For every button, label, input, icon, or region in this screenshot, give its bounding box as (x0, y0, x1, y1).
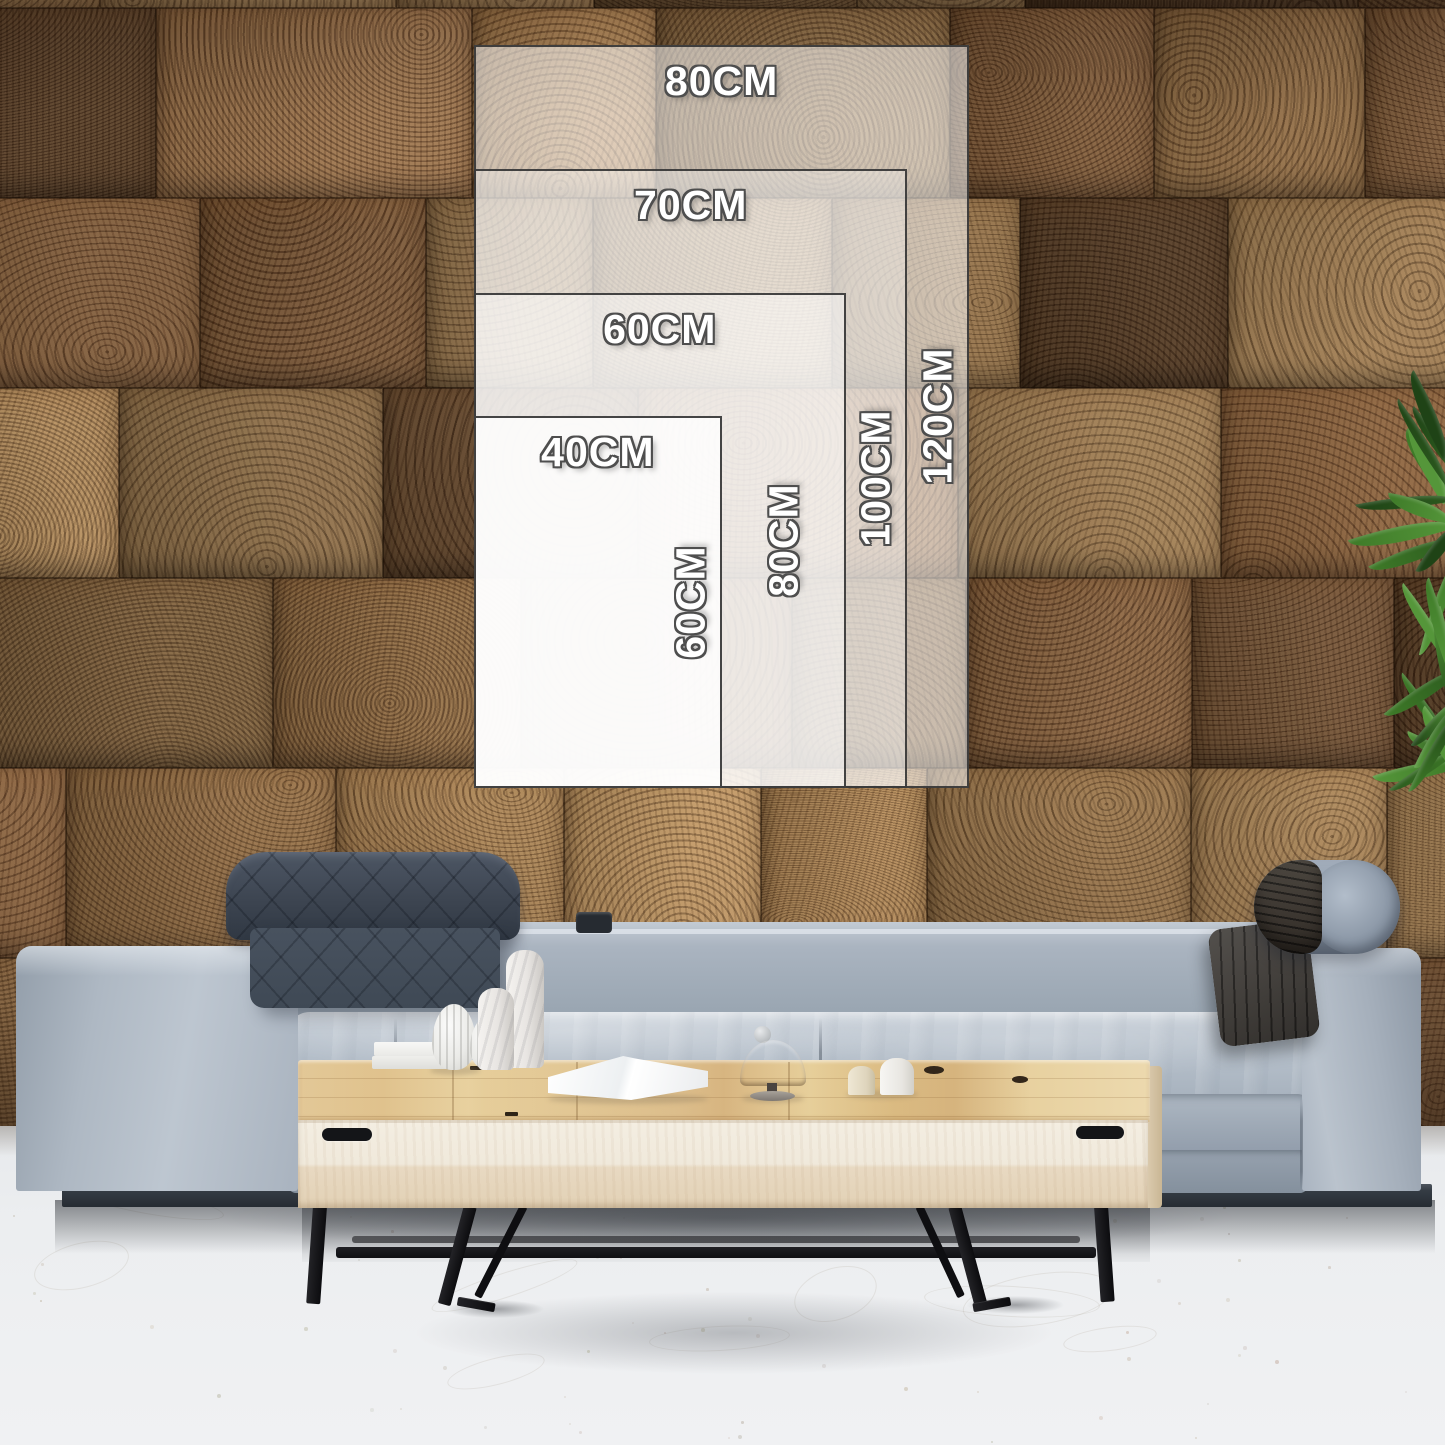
wood-block (1192, 578, 1394, 768)
wood-block (1020, 198, 1228, 388)
wood-block (472, 8, 656, 198)
candle-cream (848, 1066, 875, 1095)
floor-speckle (217, 1394, 221, 1398)
wood-block (1228, 198, 1445, 388)
floor-speckle (1243, 1346, 1247, 1350)
floor-speckle (150, 1325, 154, 1329)
sofa-quilted-headrest-panel (250, 928, 500, 1008)
wood-block (156, 8, 472, 198)
wood-block (0, 768, 66, 958)
floor-speckle (40, 1300, 42, 1302)
floor-speckle (579, 1431, 582, 1434)
wood-block (426, 198, 593, 388)
wood-block (966, 578, 1192, 768)
floor-speckle (370, 1408, 374, 1412)
floor-speckle (991, 1441, 993, 1443)
wood-block (119, 388, 383, 578)
wood-block (273, 578, 521, 768)
sofa-bolster-headrest (1254, 860, 1400, 954)
wood-block (832, 198, 1020, 388)
wood-block (656, 8, 950, 198)
wood-block (857, 0, 1025, 8)
floor-speckle (1238, 1354, 1241, 1357)
floor-speckle (304, 1327, 308, 1331)
floor-speckle (1099, 1416, 1103, 1420)
floor-speckle (1226, 1298, 1230, 1302)
table-handle-left (322, 1128, 372, 1141)
wood-block (1154, 8, 1365, 198)
floor-speckle (1405, 1391, 1407, 1393)
wood-block (1025, 0, 1358, 8)
wood-block (1365, 8, 1445, 198)
marble-jar-short (478, 988, 514, 1070)
floor-speckle (400, 1408, 402, 1410)
table-handle-right (1076, 1126, 1124, 1139)
wood-block (593, 198, 832, 388)
wood-block (1221, 388, 1445, 578)
floor-speckle (741, 1421, 744, 1424)
table-top-surface (298, 1060, 1150, 1122)
headrest-bracket (576, 912, 612, 933)
wood-block (1358, 0, 1445, 8)
wood-block (100, 0, 396, 8)
candle-white (880, 1058, 914, 1095)
wood-block (0, 388, 119, 578)
floor-speckle (728, 1437, 730, 1439)
wood-block (0, 0, 100, 8)
wood-block (950, 8, 1154, 198)
wood-block (958, 388, 1221, 578)
wood-block (383, 388, 638, 578)
wood-knot (924, 1066, 944, 1074)
wood-block (396, 0, 594, 8)
wood-block (638, 388, 958, 578)
sofa-armrest-right (1302, 948, 1421, 1191)
wood-block (594, 0, 857, 8)
wood-block (521, 578, 792, 768)
floor-speckle (1275, 1360, 1279, 1364)
floor-speckle (33, 1292, 36, 1295)
leg-shadow-right (945, 1292, 1085, 1318)
wood-block (1394, 578, 1445, 768)
bolster-leather-wrap (1254, 860, 1322, 954)
floor-speckle (484, 1426, 487, 1429)
wood-block (200, 198, 426, 388)
floor-speckle (738, 1435, 742, 1439)
floor-speckle (1195, 1437, 1197, 1439)
table-front-face (298, 1120, 1148, 1208)
wood-block (0, 198, 200, 388)
seat-seam-right (1300, 1098, 1303, 1190)
wood-block (0, 578, 273, 768)
bell-ornament-foot (750, 1091, 795, 1101)
floor-speckle (1157, 1279, 1161, 1283)
wood-block (792, 578, 966, 768)
sofa-quilted-headrest-roll (226, 852, 520, 940)
product-lifestyle-image: 80CM120CM70CM100CM60CM80CM40CM60CM (0, 0, 1445, 1445)
floor-speckle (569, 1423, 571, 1425)
wood-joint-mark (505, 1112, 518, 1116)
wood-knot (1012, 1076, 1028, 1083)
wood-block (0, 8, 156, 198)
